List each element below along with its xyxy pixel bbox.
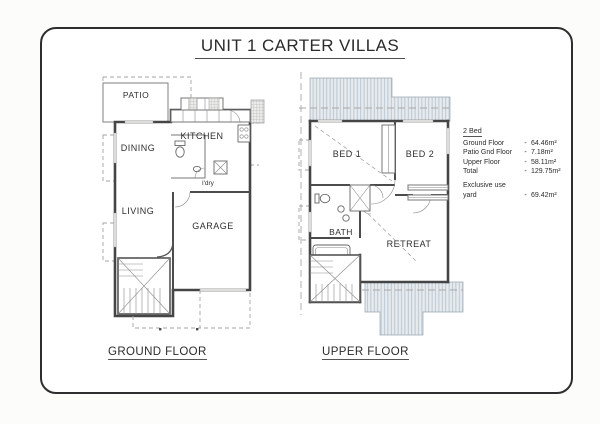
legend-value: 7.18m² [531, 148, 567, 158]
legend-label: Patio Gnd Floor [463, 148, 520, 158]
uf-bed1-closet [382, 125, 395, 173]
legend-title: 2 Bed [463, 126, 482, 137]
gf-garage-label: GARAGE [192, 221, 234, 231]
gf-dining-label: DINING [121, 143, 156, 153]
uf-bath-label: BATH [329, 227, 353, 237]
legend-row-ground-floor: Ground Floor - 64.46m² [463, 139, 567, 149]
legend-row-total: Total - 129.75m² [463, 167, 567, 177]
gf-garage-door [200, 289, 246, 292]
uf-basin2-icon [343, 215, 349, 221]
legend-value: 64.46m² [531, 139, 567, 149]
gf-patio-label: PATIO [123, 90, 149, 100]
gf-kitchen-label: KITCHEN [180, 131, 223, 141]
uf-basin1-icon [338, 206, 344, 212]
upper-floor-plan: BED 1 BED 2 BATH RETREAT [291, 66, 473, 346]
legend-separator: - [520, 148, 531, 158]
legend-row-patio: Patio Gnd Floor - 7.18m² [463, 148, 567, 158]
legend-label: yard [463, 191, 520, 201]
ground-floor-caption: GROUND FLOOR [108, 346, 207, 360]
page-title-text: UNIT 1 CARTER VILLAS [195, 36, 405, 59]
legend-value: 69.42m² [531, 191, 567, 201]
page-title: UNIT 1 CARTER VILLAS [150, 36, 450, 59]
upper-floor-caption: UPPER FLOOR [322, 346, 409, 360]
uf-toilet-icon [315, 194, 330, 203]
uf-retreat-label: RETREAT [387, 239, 432, 249]
gf-exterior-unit [251, 100, 264, 123]
legend-label: Total [463, 167, 520, 177]
gf-stove-icon [238, 125, 250, 142]
legend-separator: - [520, 158, 531, 168]
uf-roof-hatch-top [299, 78, 450, 121]
gf-stairs [118, 258, 170, 314]
legend-label: Ground Floor [463, 139, 520, 149]
legend-row-upper-floor: Upper Floor - 58.11m² [463, 158, 567, 168]
legend-value: 129.75m² [531, 167, 567, 177]
uf-stairs [310, 255, 360, 302]
legend-label: Upper Floor [463, 158, 520, 168]
gf-basin-icon [193, 166, 200, 171]
uf-roof-hatch-bottom [351, 282, 463, 335]
gf-laundry-label: l'dry [202, 180, 214, 187]
ground-floor-plan: PATIO [93, 73, 273, 341]
uf-bed1-label: BED 1 [333, 149, 362, 159]
legend-label: Exclusive use [463, 181, 520, 191]
legend-separator: - [520, 139, 531, 149]
legend-value: 58.11m² [531, 158, 567, 168]
scanned-floor-plan-page: { "page": { "title": "UNIT 1 CARTER VILL… [0, 0, 600, 424]
gf-living-label: LIVING [122, 206, 155, 216]
legend-separator: - [520, 191, 531, 201]
gf-toilet-icon [175, 141, 185, 157]
uf-shower-icon [350, 185, 370, 211]
legend-exclusive-use: Exclusive use yard - 69.42m² [463, 181, 567, 200]
uf-bed2-label: BED 2 [406, 149, 435, 159]
area-legend: 2 Bed Ground Floor - 64.46m² Patio Gnd F… [463, 126, 567, 200]
gf-left-dashed-planters [103, 135, 115, 261]
gf-patio: PATIO [103, 83, 168, 122]
legend-separator: - [520, 167, 531, 177]
